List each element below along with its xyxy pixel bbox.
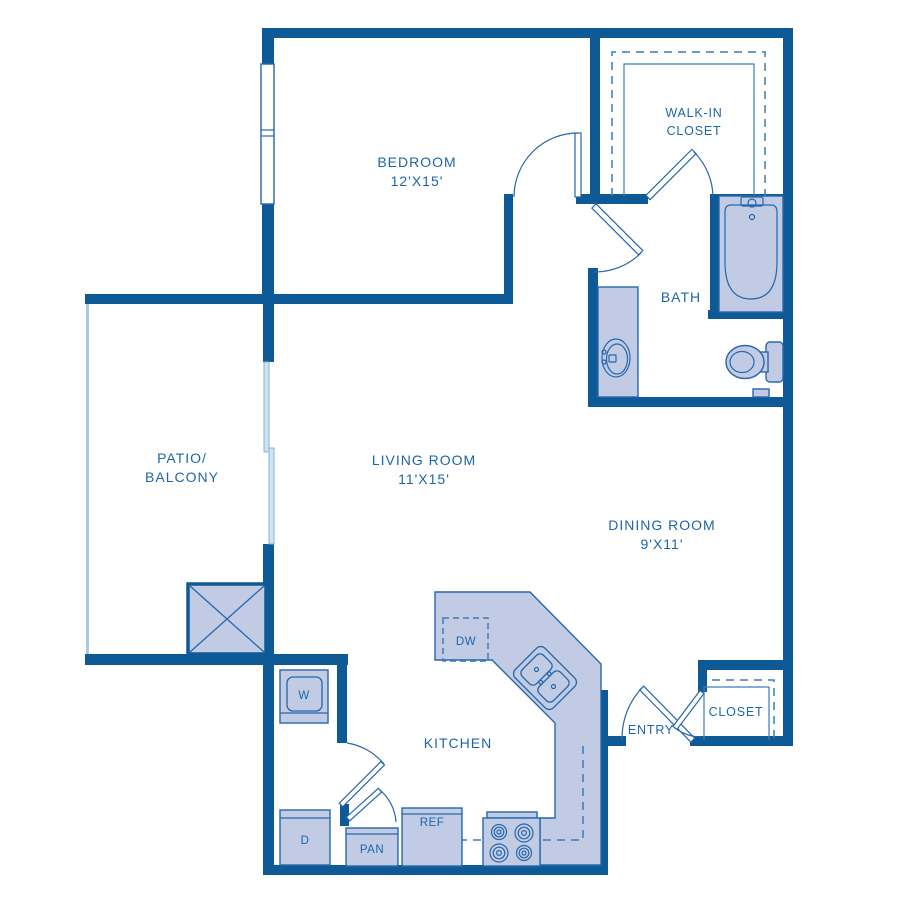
wall-laundry-right (337, 654, 347, 743)
room-label-patio-1: PATIO/ (157, 450, 207, 466)
room-label-closet: CLOSET (709, 705, 764, 719)
appliance-label-pantry: PAN (360, 844, 384, 856)
toilet-icon (726, 342, 783, 397)
wall-bath-left (588, 268, 598, 407)
wall-top (262, 28, 793, 38)
appliance-label-dishwasher: DW (456, 636, 476, 648)
wall-tub-left (710, 194, 719, 319)
wall-outer-left-bottom (263, 654, 274, 875)
vanity-sink-icon (598, 287, 638, 397)
room-label-entry: ENTRY (628, 723, 674, 737)
room-label-kitchen: KITCHEN (424, 735, 492, 751)
wall-bedroom-left-upper (262, 28, 274, 66)
wall-bedroom-bottom (262, 294, 513, 304)
wall-bedroom-left-lower (262, 202, 274, 304)
wall-bedroom-door-jamb (504, 194, 513, 304)
room-dims-living-room: 11'X15' (398, 471, 450, 487)
room-label-bedroom: BEDROOM (377, 154, 456, 170)
wall-pantry-stub (340, 804, 349, 826)
wall-bath-bottom (588, 397, 793, 407)
wic-door-icon (646, 149, 713, 199)
storage-box-icon (188, 584, 266, 654)
appliance-label-dryer: D (301, 835, 310, 847)
room-label-patio-2: BALCONY (145, 469, 219, 485)
window-icon (261, 64, 274, 204)
room-label-dining-room: DINING ROOM (608, 517, 715, 533)
floor-plan: BEDROOM 12'X15' WALK-IN CLOSET BATH PATI… (0, 0, 900, 900)
room-label-walk-in-closet-2: CLOSET (667, 124, 722, 138)
bathtub-icon (719, 196, 783, 312)
room-dims-dining-room: 9'X11' (640, 536, 683, 552)
appliance-label-washer: W (298, 690, 309, 702)
labels: BEDROOM 12'X15' WALK-IN CLOSET BATH PATI… (145, 106, 763, 856)
wall-closet-top (698, 660, 793, 670)
wall-wic-left (590, 28, 600, 204)
wall-livingroom-west-upper (263, 294, 274, 362)
stove-icon (483, 812, 540, 866)
appliance-label-refrigerator: REF (420, 817, 445, 829)
wall-patio-top (85, 294, 265, 304)
patio-railing (86, 304, 89, 654)
sliding-door-icon (264, 362, 274, 544)
room-label-living-room: LIVING ROOM (372, 452, 476, 468)
room-label-bath: BATH (661, 289, 701, 305)
wall-entry-bottom-right (690, 736, 793, 746)
room-dims-bedroom: 12'X15' (391, 173, 444, 189)
room-label-walk-in-closet-1: WALK-IN (665, 106, 722, 120)
kitchen-area (339, 592, 601, 866)
bedroom-door-icon (514, 133, 581, 197)
wall-right (783, 28, 793, 746)
bath-door-icon (592, 204, 643, 272)
